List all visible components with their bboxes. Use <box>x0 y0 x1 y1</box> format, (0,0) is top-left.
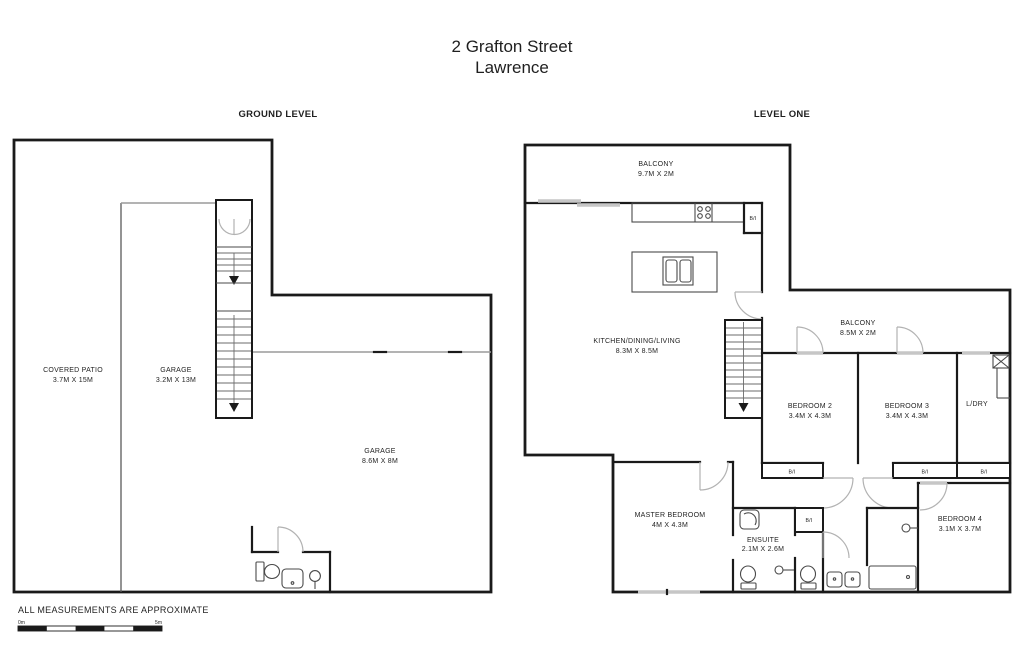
master-bedroom-dims: 4M X 4.3M <box>652 522 688 529</box>
bedroom2-dims: 3.4M X 4.3M <box>789 413 831 420</box>
bathroom-roll-holder-icon <box>902 524 918 532</box>
wc-toilet-icon <box>801 566 817 589</box>
covered-patio-dims: 3.7M X 15M <box>53 377 93 384</box>
ground-level-heading: GROUND LEVEL <box>238 109 317 120</box>
balcony-front-dims: 9.7M X 2M <box>638 171 674 178</box>
bedroom3-door-arc <box>863 478 893 508</box>
scale-min-label: 0m <box>18 620 25 626</box>
bedroom3-dims: 3.4M X 4.3M <box>886 413 928 420</box>
disclaimer-text: ALL MEASUREMENTS ARE APPROXIMATE <box>18 605 209 615</box>
balcony-rear-dims: 8.5M X 2M <box>840 330 876 337</box>
level-one-staircase <box>725 320 762 418</box>
hall-robe-label: B/I <box>981 470 988 476</box>
garage-long-dims: 3.2M X 13M <box>156 377 196 384</box>
laundry-label: L/DRY <box>966 401 988 408</box>
bedroom4-label: BEDROOM 4 <box>938 516 982 523</box>
balcony-rear-label: BALCONY <box>840 320 875 327</box>
pantry-bi-label: B/I <box>750 216 757 222</box>
ground-bathroom <box>252 527 330 592</box>
title-block: 2 Grafton Street Lawrence <box>452 37 573 77</box>
bedroom4-dims: 3.1M X 3.7M <box>939 526 981 533</box>
balcony-door-arc <box>735 292 762 319</box>
page-title-line1: 2 Grafton Street <box>452 37 573 56</box>
floor-plan-page: 2 Grafton Street Lawrence GROUND LEVEL L… <box>0 0 1024 670</box>
master-bedroom-label: MASTER BEDROOM <box>635 512 706 519</box>
basin-icon <box>310 571 321 589</box>
bedroom2-robe-label: B/I <box>789 470 796 476</box>
garage-long-label: GARAGE <box>160 367 192 374</box>
master-door-arc <box>700 462 728 490</box>
balcony-front-label: BALCONY <box>638 161 673 168</box>
bedroom4-door-arc <box>920 483 947 510</box>
vanity-basin-icon <box>827 572 860 587</box>
level-one-heading: LEVEL ONE <box>754 109 810 120</box>
toilet-icon <box>256 562 280 581</box>
bedroom3-balcony-door-arc <box>897 327 923 353</box>
page-title-line2: Lawrence <box>475 58 549 77</box>
garage-main-label: GARAGE <box>364 448 396 455</box>
kitchen-bench <box>632 203 744 222</box>
garage-main-dims: 8.6M X 8M <box>362 458 398 465</box>
ensuite-dims: 2.1M X 2.6M <box>742 546 784 553</box>
bedroom2-door-arc <box>823 478 853 508</box>
bedroom2-label: BEDROOM 2 <box>788 403 832 410</box>
bathroom-shower-icon <box>869 566 916 589</box>
scale-max-label: 5m <box>155 620 162 626</box>
lobby-door-arc <box>823 532 849 558</box>
ground-staircase <box>216 200 252 418</box>
covered-patio-label: COVERED PATIO <box>43 367 103 374</box>
level-one-plan: B/I <box>525 145 1010 594</box>
roll-holder-icon <box>775 566 794 574</box>
footer: ALL MEASUREMENTS ARE APPROXIMATE 0m 5m <box>18 605 209 631</box>
ensuite-label: ENSUITE <box>747 537 779 544</box>
floor-plan-drawing: 2 Grafton Street Lawrence GROUND LEVEL L… <box>0 0 1024 670</box>
ensuite-toilet-icon <box>741 566 757 589</box>
kitchen-label: KITCHEN/DINING/LIVING <box>593 338 680 345</box>
ensuite-robe-label: B/I <box>806 518 813 524</box>
bathroom-door-arc <box>278 527 303 552</box>
kitchen-island <box>632 252 717 292</box>
bedroom3-robe-label: B/I <box>922 470 929 476</box>
pantry-built-in: B/I <box>744 203 762 233</box>
laundry-appliance <box>993 355 1010 398</box>
bedroom3-label: BEDROOM 3 <box>885 403 929 410</box>
cooktop-icon <box>698 207 711 219</box>
shower-icon <box>282 569 303 588</box>
bedroom2-balcony-door-arc <box>797 327 823 353</box>
kitchen-dims: 8.3M X 8.5M <box>616 348 658 355</box>
ground-level-plan: COVERED PATIO 3.7M X 15M GARAGE 3.2M X 1… <box>14 140 491 592</box>
scale-bar: 0m 5m <box>18 620 162 631</box>
level-one-outer-walls <box>525 145 1010 592</box>
ensuite-shower-icon <box>740 510 759 529</box>
